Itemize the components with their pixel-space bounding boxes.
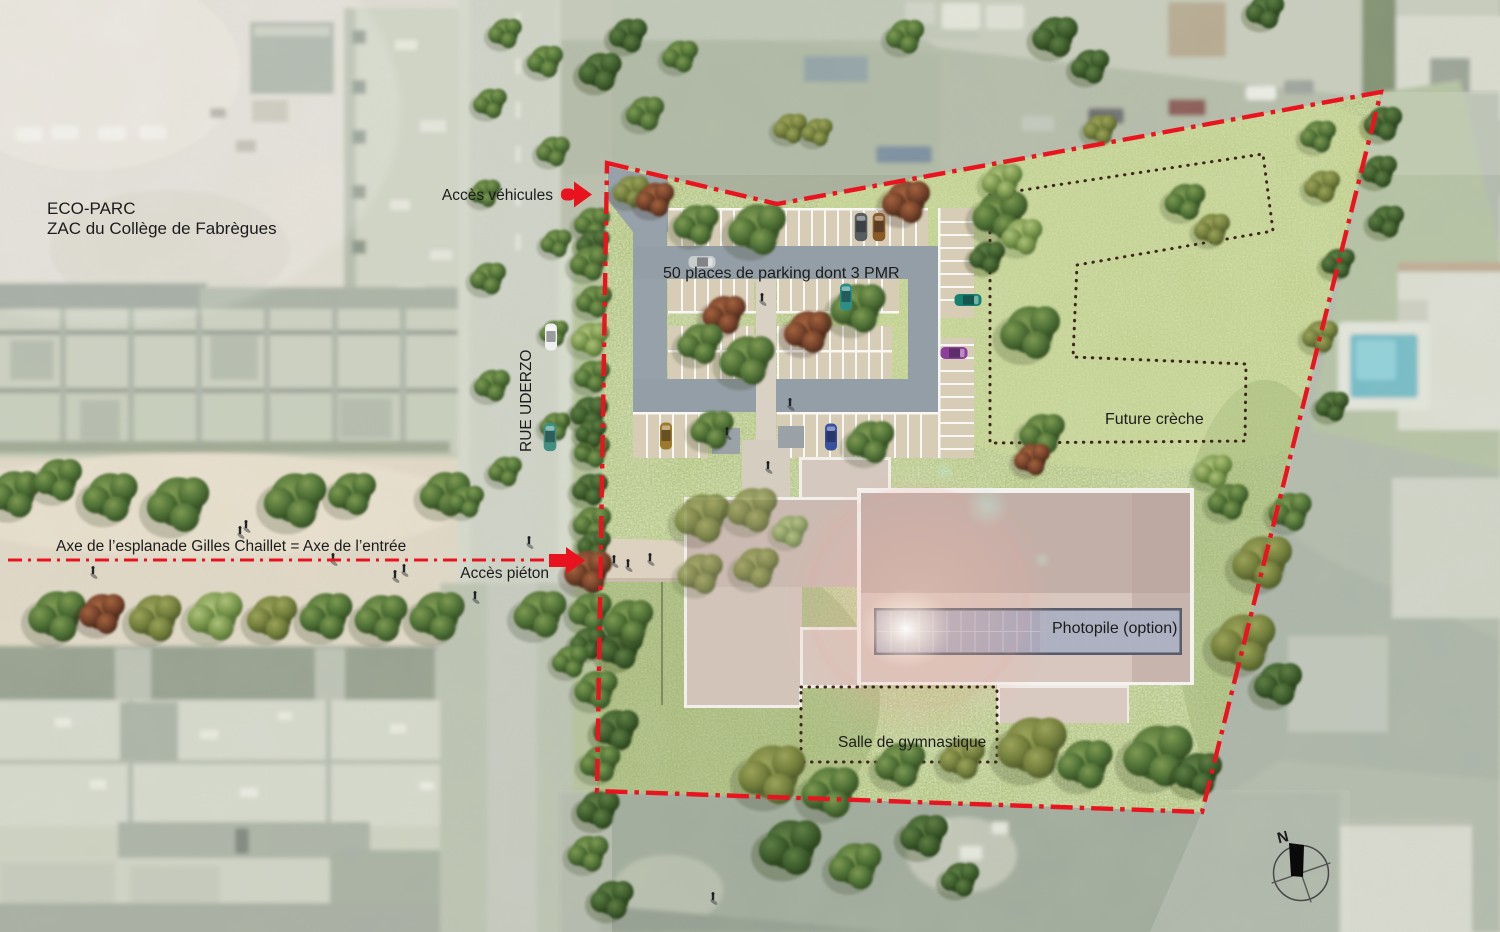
svg-text:Accès véhicules: Accès véhicules [442, 187, 553, 204]
svg-text:Accès piéton: Accès piéton [460, 565, 549, 582]
svg-text:ECO-PARC: ECO-PARC [47, 199, 135, 218]
svg-text:Future crèche: Future crèche [1105, 411, 1204, 428]
svg-text:Axe de l’esplanade Gilles Chai: Axe de l’esplanade Gilles Chaillet = Axe… [56, 538, 406, 555]
svg-text:Salle de gymnastique: Salle de gymnastique [838, 734, 986, 751]
svg-text:ZAC du Collège de Fabrègues: ZAC du Collège de Fabrègues [47, 219, 277, 238]
svg-text:Photopile (option): Photopile (option) [1052, 620, 1177, 637]
svg-text:RUE UDERZO: RUE UDERZO [518, 350, 535, 452]
svg-text:50 places de parking dont 3 PM: 50 places de parking dont 3 PMR [663, 265, 900, 282]
